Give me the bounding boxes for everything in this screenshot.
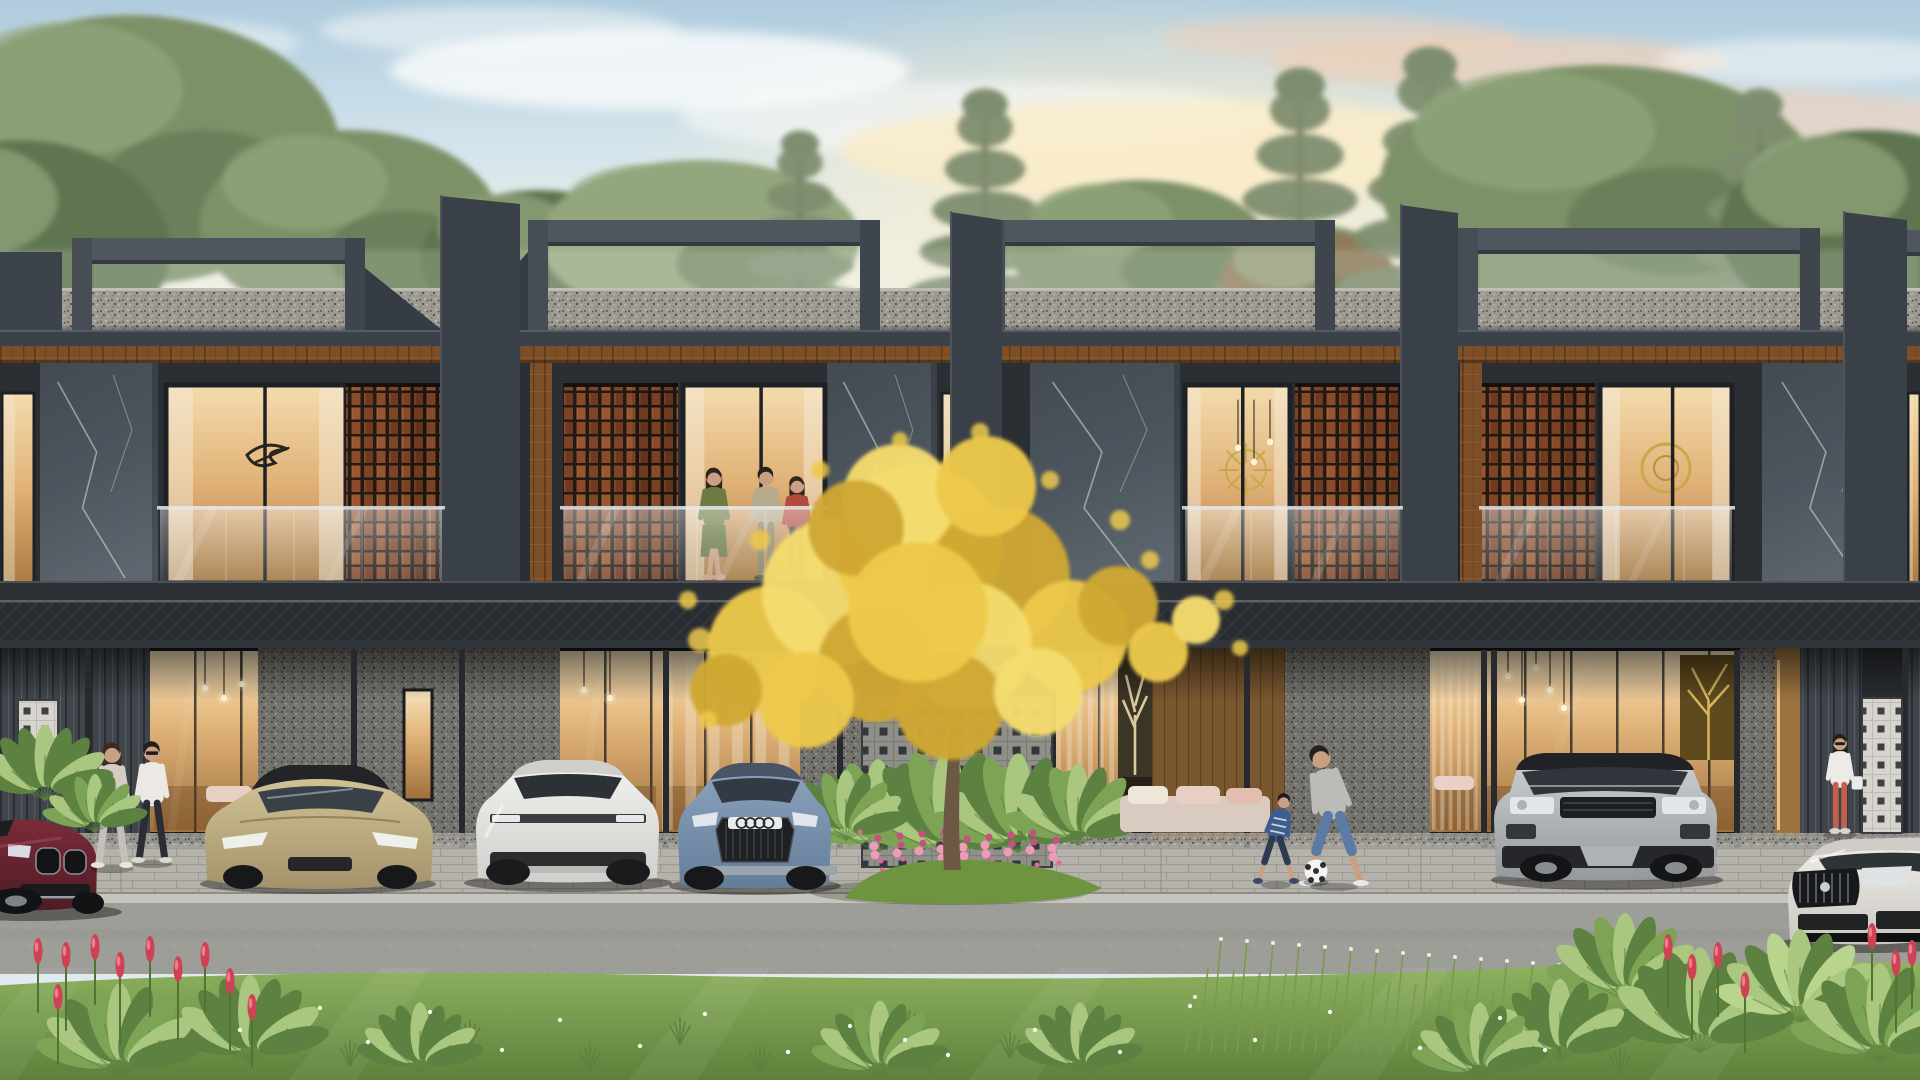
daybed-bench <box>1120 786 1270 832</box>
bag <box>1852 776 1863 789</box>
windshield <box>712 778 800 803</box>
glass-balustrade <box>1182 506 1403 583</box>
scene-canvas <box>0 0 1920 1080</box>
daisy <box>558 1018 562 1022</box>
frame-beam <box>985 220 1335 242</box>
daisy <box>703 1012 707 1016</box>
cushion <box>1128 786 1168 804</box>
party-wall-fin <box>1843 212 1907 602</box>
frame-post <box>72 238 92 330</box>
frame-beam <box>528 220 880 242</box>
frame-post <box>1458 228 1478 330</box>
daisy <box>1498 1016 1502 1020</box>
sunglasses <box>146 751 158 755</box>
glass-balustrade <box>1479 506 1735 583</box>
daisy <box>428 1010 432 1014</box>
roof-glass-rail <box>1480 252 1798 290</box>
daisy <box>1033 1028 1037 1032</box>
wood-joint-strip <box>1460 363 1482 602</box>
cushion <box>1226 788 1262 804</box>
splitter <box>1794 933 1920 942</box>
slit-window <box>404 690 432 800</box>
frame-beam <box>1458 228 1820 250</box>
frame-post <box>1800 228 1820 330</box>
daisy <box>1118 1050 1122 1054</box>
roof-parapet-box <box>0 252 62 330</box>
slit-window <box>1908 393 1920 588</box>
daisy <box>848 1024 852 1028</box>
headlight <box>1862 866 1912 887</box>
wood-joint-strip <box>530 363 552 602</box>
headlight <box>1510 797 1554 814</box>
grille <box>288 857 352 871</box>
frame-beam <box>72 238 365 260</box>
breeze-screen-right <box>1862 698 1902 833</box>
marble-panel <box>40 363 158 598</box>
daisy <box>1328 1010 1332 1014</box>
daisy <box>500 1048 504 1052</box>
kidney-grille <box>64 850 86 874</box>
sunglasses <box>1835 742 1845 745</box>
party-wall-fin <box>440 196 520 602</box>
windshield <box>514 774 622 799</box>
cushion <box>1176 786 1220 804</box>
cloud <box>320 6 680 54</box>
slit-window <box>2 393 34 588</box>
kidney-grille <box>36 848 60 874</box>
daisy <box>1543 1048 1547 1052</box>
daisy <box>946 1053 950 1057</box>
glass-balustrade <box>157 506 445 583</box>
grille <box>1560 797 1656 818</box>
roof-glass-rail <box>1007 244 1313 290</box>
car-silver-suv <box>1491 753 1723 890</box>
daisy <box>1253 1038 1257 1042</box>
frame-post <box>528 220 548 330</box>
roof-glass-rail <box>550 244 858 290</box>
frame-post <box>345 238 365 330</box>
daisy <box>903 1038 907 1042</box>
windshield <box>1522 767 1688 795</box>
headlight <box>1662 797 1706 814</box>
architectural-rendering <box>0 0 1920 1080</box>
party-wall-fin <box>1400 205 1458 602</box>
daisy <box>1188 1004 1192 1008</box>
daisy <box>786 1050 790 1054</box>
daisy <box>238 1028 242 1032</box>
frame-post <box>860 220 880 330</box>
daisy <box>318 1006 322 1010</box>
daisy <box>638 1044 642 1048</box>
daisy <box>1418 1046 1422 1050</box>
frame-post <box>1315 220 1335 330</box>
daisy <box>366 1040 370 1044</box>
roof-glass-rail <box>94 262 343 290</box>
